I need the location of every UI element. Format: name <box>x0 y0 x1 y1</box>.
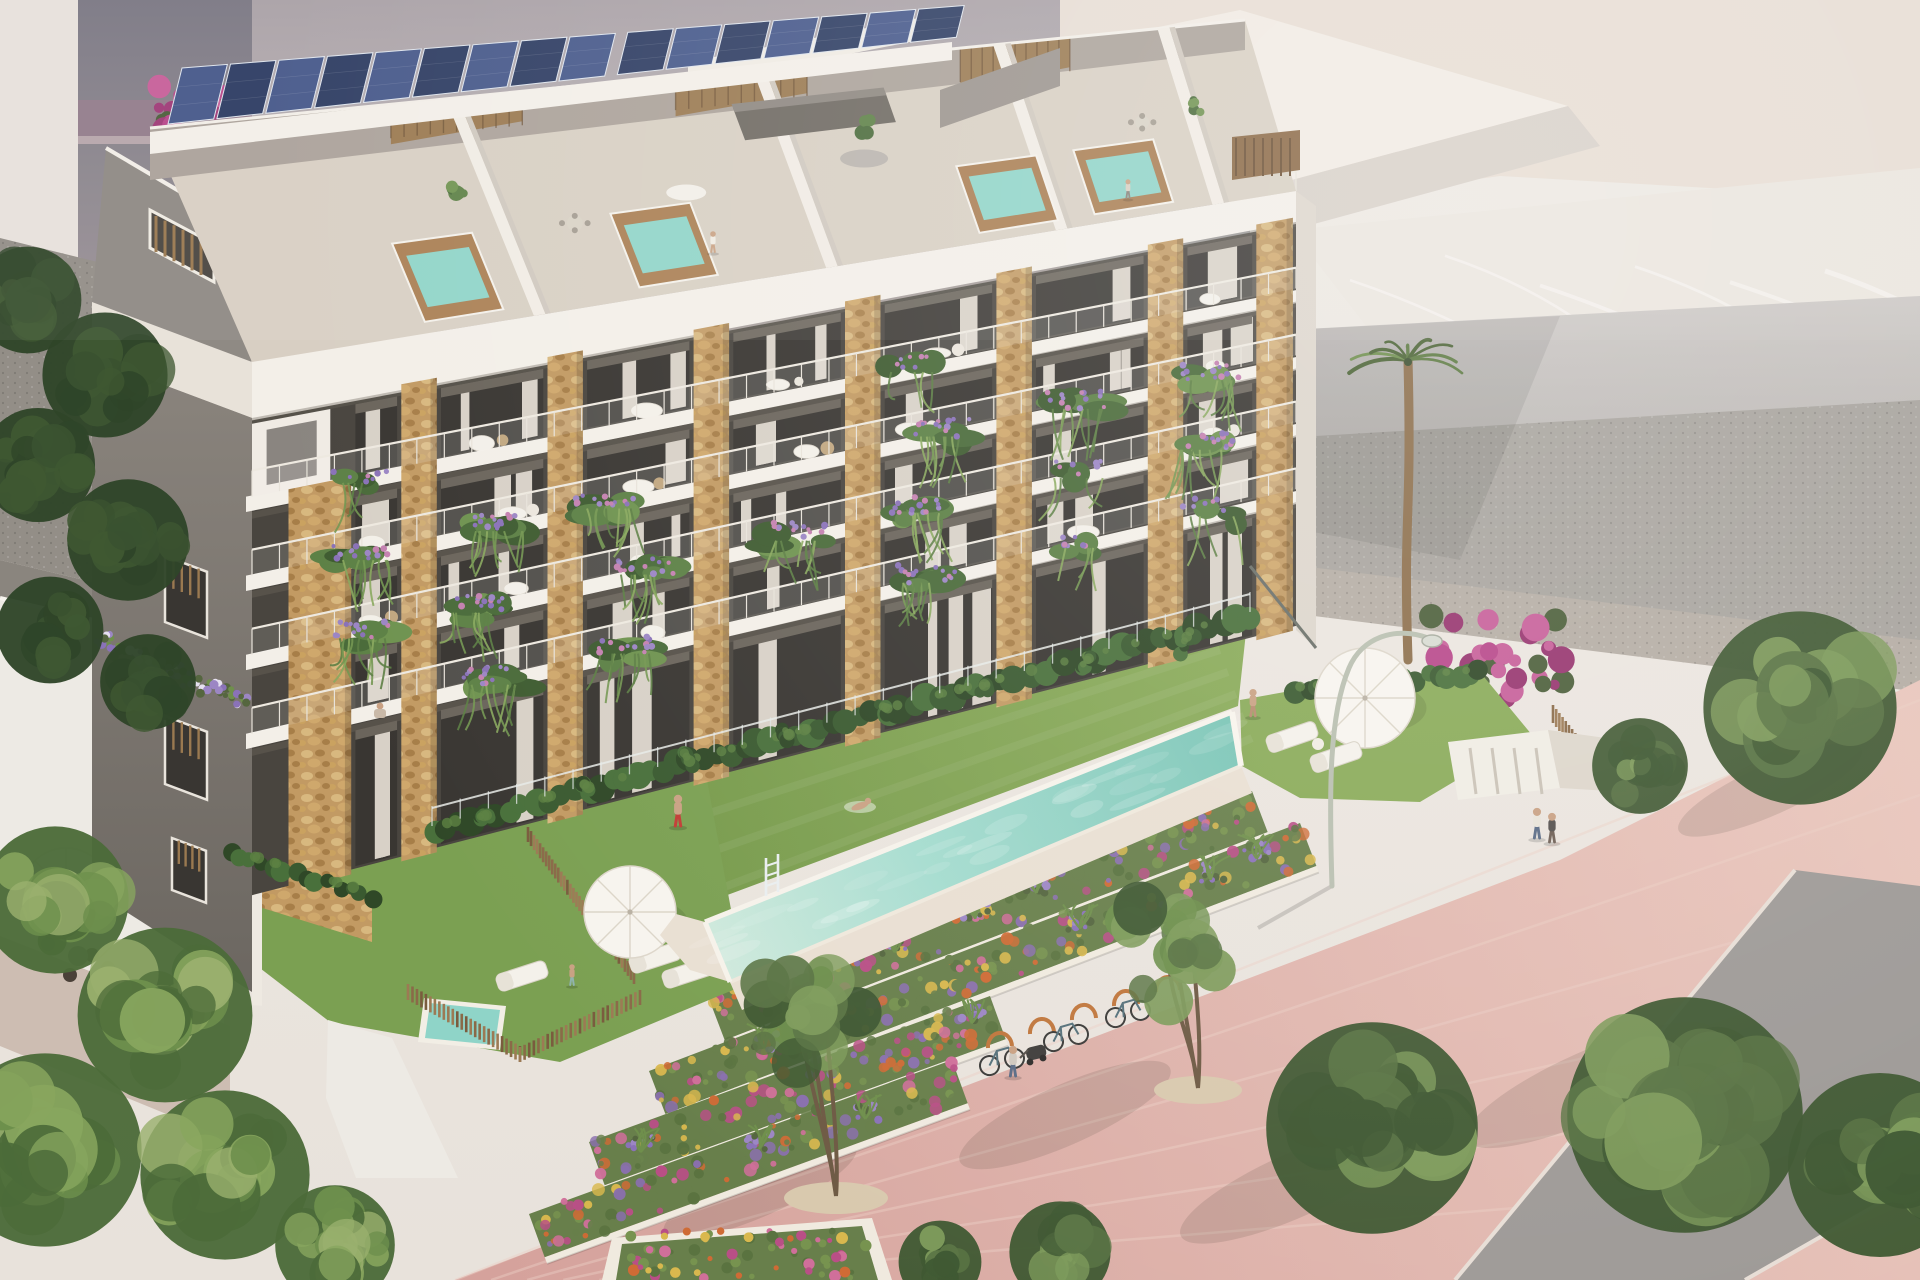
architectural-render <box>0 0 1920 1280</box>
light-haze-overlay <box>0 0 1920 1280</box>
render-viewport <box>0 0 1920 1280</box>
